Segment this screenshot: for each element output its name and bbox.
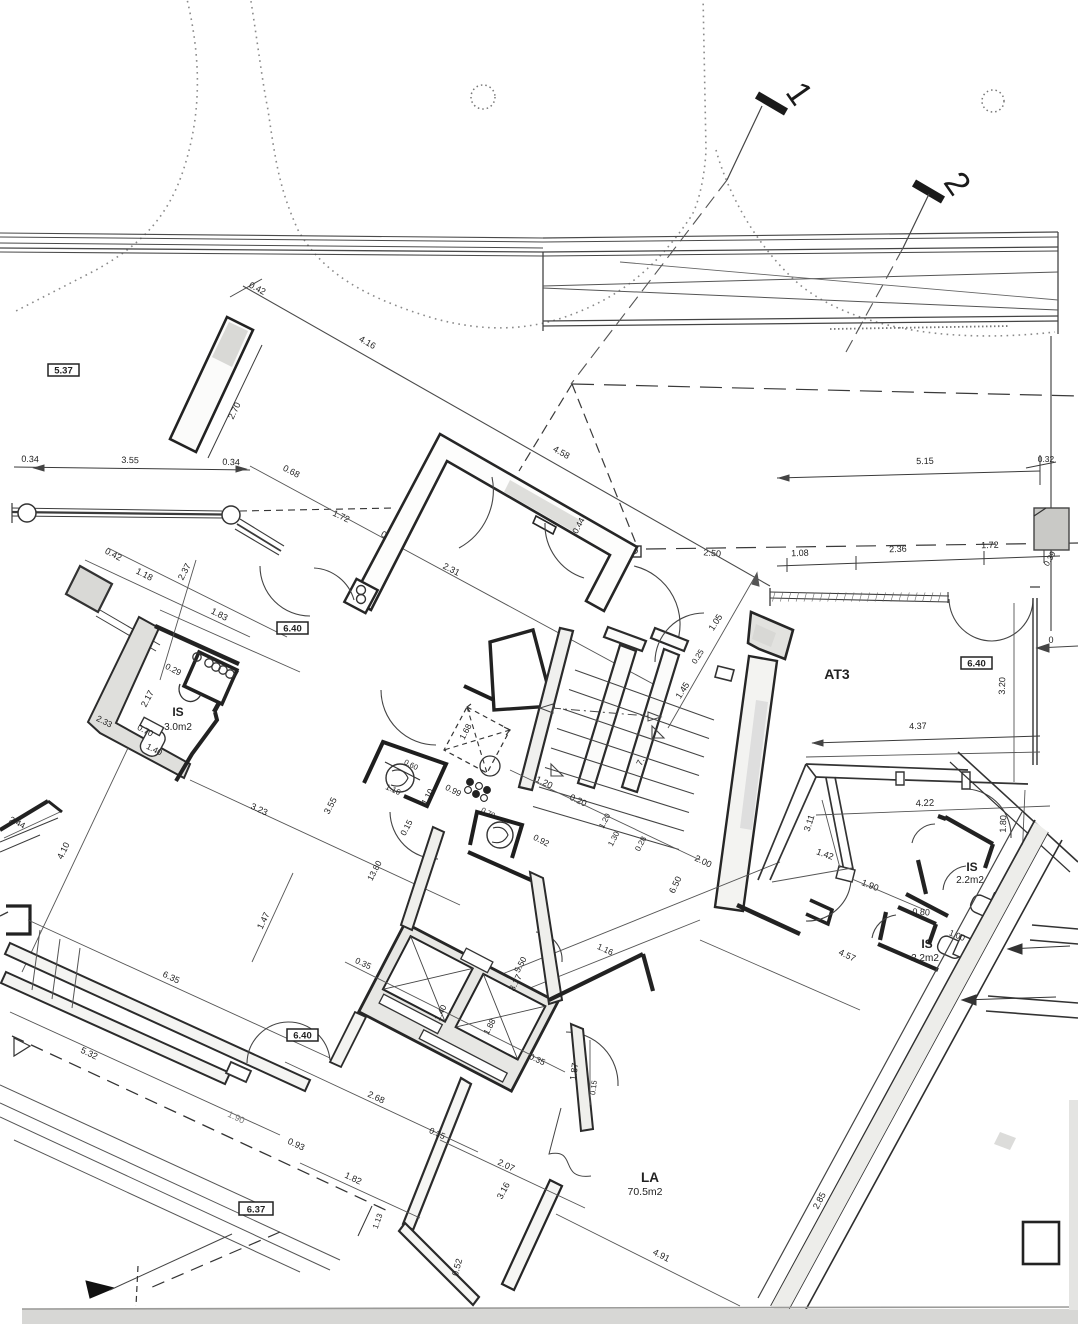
svg-text:5.15: 5.15 bbox=[916, 456, 934, 466]
svg-text:4.37: 4.37 bbox=[909, 721, 927, 732]
svg-text:2.36: 2.36 bbox=[889, 544, 907, 555]
svg-text:0.80: 0.80 bbox=[912, 907, 930, 918]
svg-text:1.08: 1.08 bbox=[791, 548, 809, 559]
svg-text:IS: IS bbox=[921, 937, 932, 951]
svg-text:AT3: AT3 bbox=[824, 666, 850, 682]
svg-text:2.2m2: 2.2m2 bbox=[956, 875, 984, 886]
svg-text:6.37: 6.37 bbox=[247, 1205, 266, 1216]
svg-text:IS: IS bbox=[966, 860, 977, 874]
svg-text:5.37: 5.37 bbox=[54, 366, 73, 377]
svg-text:3.55: 3.55 bbox=[121, 455, 139, 466]
svg-text:3.20: 3.20 bbox=[997, 677, 1008, 695]
svg-text:IS: IS bbox=[172, 705, 183, 719]
svg-text:1.80: 1.80 bbox=[998, 815, 1009, 833]
svg-text:6.40: 6.40 bbox=[967, 659, 986, 670]
svg-text:6.40: 6.40 bbox=[293, 1031, 312, 1042]
svg-text:70.5m2: 70.5m2 bbox=[627, 1186, 662, 1198]
svg-text:6.40: 6.40 bbox=[283, 624, 302, 635]
svg-text:2.2m2: 2.2m2 bbox=[911, 953, 939, 964]
svg-text:0.34: 0.34 bbox=[222, 457, 240, 468]
svg-text:4.22: 4.22 bbox=[915, 798, 934, 810]
svg-text:1.72: 1.72 bbox=[981, 540, 999, 551]
svg-text:0.34: 0.34 bbox=[21, 454, 39, 465]
svg-text:LA: LA bbox=[641, 1170, 659, 1185]
svg-text:3.0m2: 3.0m2 bbox=[164, 722, 192, 733]
